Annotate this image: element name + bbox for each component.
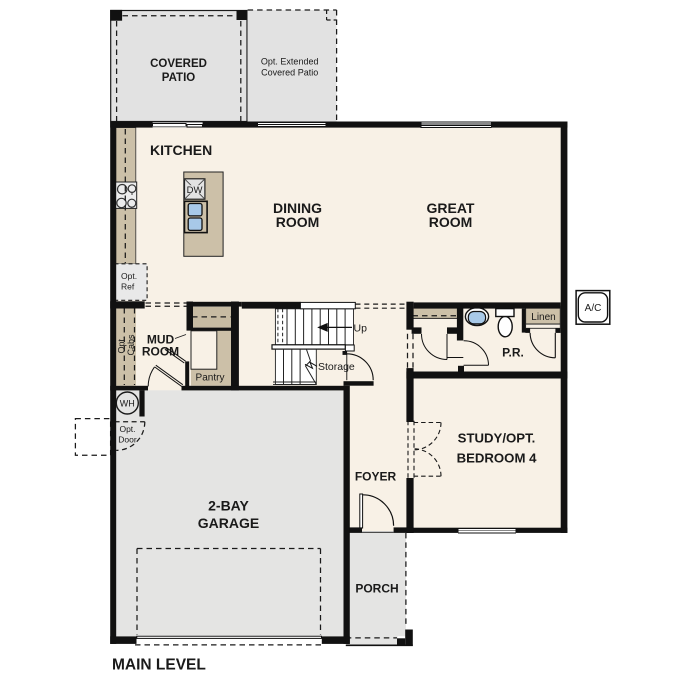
svg-text:WH: WH bbox=[120, 398, 135, 408]
svg-text:P.R.: P.R. bbox=[502, 346, 524, 360]
svg-text:ROOM: ROOM bbox=[429, 214, 473, 230]
svg-text:BEDROOM 4: BEDROOM 4 bbox=[457, 451, 538, 466]
svg-text:Ref: Ref bbox=[121, 282, 135, 292]
svg-text:Up: Up bbox=[354, 323, 368, 335]
svg-text:Opt.: Opt. bbox=[121, 271, 137, 281]
svg-text:Pantry: Pantry bbox=[196, 373, 225, 384]
svg-text:Linen: Linen bbox=[531, 312, 555, 323]
svg-text:Door: Door bbox=[118, 434, 137, 444]
svg-text:FOYER: FOYER bbox=[355, 470, 397, 484]
svg-text:KITCHEN: KITCHEN bbox=[150, 142, 212, 158]
svg-text:COVERED: COVERED bbox=[150, 58, 207, 70]
svg-text:PATIO: PATIO bbox=[162, 72, 195, 84]
svg-text:STUDY/OPT.: STUDY/OPT. bbox=[458, 431, 536, 446]
svg-text:A/C: A/C bbox=[585, 303, 602, 314]
svg-text:Covered Patio: Covered Patio bbox=[261, 68, 318, 78]
svg-text:MAIN LEVEL: MAIN LEVEL bbox=[112, 657, 206, 674]
svg-text:GARAGE: GARAGE bbox=[198, 515, 259, 531]
svg-text:Opt.: Opt. bbox=[117, 336, 127, 353]
svg-text:Storage: Storage bbox=[318, 361, 355, 373]
svg-text:Opt. Extended: Opt. Extended bbox=[261, 57, 319, 67]
svg-text:Cabs: Cabs bbox=[126, 334, 136, 356]
svg-text:DW: DW bbox=[187, 185, 203, 196]
svg-text:2-BAY: 2-BAY bbox=[208, 498, 249, 514]
svg-text:ROOM: ROOM bbox=[276, 214, 320, 230]
svg-text:PORCH: PORCH bbox=[355, 582, 398, 596]
svg-text:ROOM: ROOM bbox=[142, 345, 179, 359]
svg-text:Opt.: Opt. bbox=[119, 424, 135, 434]
